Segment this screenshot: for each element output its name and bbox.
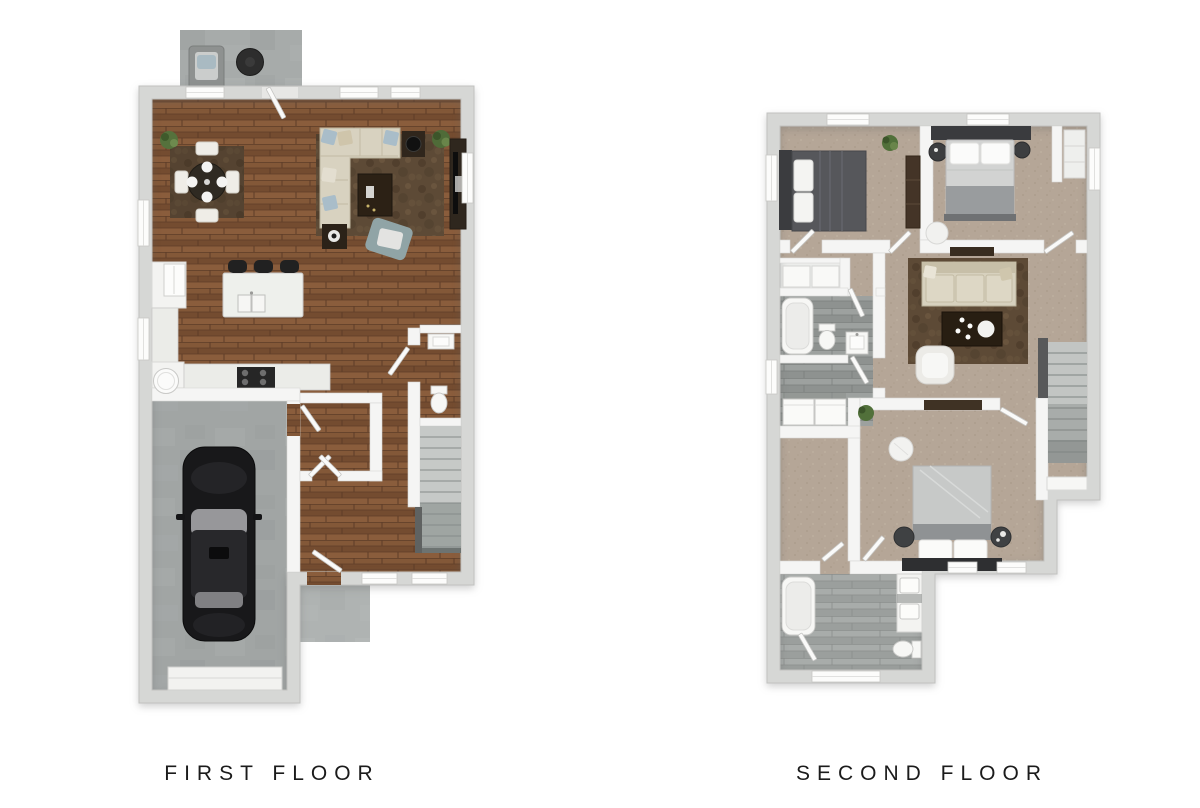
nightstand: [929, 143, 947, 161]
car-hood: [191, 462, 247, 494]
linen-wall: [780, 258, 844, 263]
burner: [242, 370, 248, 376]
toilet-tank: [819, 324, 835, 331]
powder-top-wall: [420, 325, 461, 333]
car-trunk: [193, 613, 245, 637]
dining-chair: [175, 171, 188, 193]
decor-dot: [956, 329, 961, 334]
pillow: [794, 160, 813, 191]
master-right-wall: [1036, 398, 1048, 500]
master-mattress: [913, 466, 991, 528]
stair-railing: [1038, 338, 1048, 398]
linen-shelf: [812, 266, 839, 287]
dresser: [906, 156, 920, 228]
nightstand-decor: [934, 148, 938, 152]
tub-basin: [786, 303, 809, 349]
closet-bath-wall: [780, 561, 820, 574]
first-floor-stairs: [415, 426, 461, 553]
floor-plans-drawing: [0, 0, 1200, 808]
decor-dot: [373, 209, 376, 212]
blanket-band: [913, 524, 991, 540]
car-sunroof: [209, 547, 229, 559]
armchair-seat: [922, 353, 948, 378]
sink-basin: [433, 337, 449, 346]
bath-top-wall: [780, 288, 848, 296]
garage-door-opening: [287, 404, 300, 436]
burner: [260, 370, 266, 376]
plant-leaf: [442, 138, 451, 147]
plant-leaf: [433, 132, 441, 140]
entry-stoop-shade: [300, 585, 370, 642]
stairs-lower: [420, 503, 461, 553]
stair-railing: [415, 507, 422, 553]
pillow: [919, 540, 952, 560]
throw-pillow: [321, 167, 337, 183]
footboard: [944, 214, 1016, 221]
nightstand-decor: [996, 538, 1000, 542]
closet-wall: [338, 471, 382, 481]
nightstand: [991, 527, 1011, 547]
throw-pillow: [322, 195, 339, 212]
car-rear-window: [195, 592, 243, 608]
tray: [978, 321, 995, 338]
linen-shelf: [783, 266, 810, 287]
plate: [217, 177, 228, 188]
plant-leaf: [161, 133, 169, 141]
burner: [242, 379, 248, 385]
pouf: [926, 222, 948, 244]
laundry-bottom-wall: [780, 426, 860, 438]
powder-wall: [408, 328, 420, 345]
bed-headboard: [779, 150, 792, 230]
decor-dot: [960, 318, 965, 323]
bed-headboard: [931, 126, 1031, 140]
laundry-counter-shadow: [783, 393, 846, 399]
dining-chair: [226, 171, 239, 193]
patio-table-top: [245, 57, 255, 67]
coffee-table-decor: [366, 186, 374, 198]
plant-leaf: [883, 137, 890, 144]
pillow: [981, 143, 1010, 164]
powder-stairs-wall: [420, 418, 461, 426]
toilet-bowl: [431, 393, 447, 413]
vanity-sink: [900, 578, 919, 593]
stair-niche: [1047, 477, 1087, 490]
dresser: [924, 400, 982, 410]
range: [237, 367, 275, 388]
plate: [187, 177, 198, 188]
nightstand-decor: [1000, 531, 1006, 537]
sink-basin: [850, 336, 864, 349]
decor-dot: [367, 205, 370, 208]
throw-pillow: [999, 267, 1013, 281]
decor-dot: [968, 324, 973, 329]
blanket: [946, 186, 1014, 218]
car-mirror: [176, 514, 185, 520]
bar-stool: [280, 260, 299, 273]
laundry: [783, 393, 846, 425]
pillow: [950, 143, 979, 164]
master-left-wall: [848, 398, 860, 561]
hall-wall: [300, 393, 382, 403]
patio-chair-pillow: [197, 55, 216, 69]
decor-dot: [966, 335, 971, 340]
bath-top-wall-stub: [876, 288, 885, 296]
first-floor-label: FIRST FLOOR: [137, 762, 407, 786]
car-mirror: [253, 514, 262, 520]
counter-left: [152, 308, 178, 362]
patio: [180, 30, 302, 92]
closet-nook-shelf: [1064, 130, 1085, 178]
throw-pillow: [923, 265, 937, 279]
speaker: [406, 137, 421, 152]
dryer: [815, 399, 846, 425]
front-door-opening: [307, 572, 341, 585]
toilet-bowl: [819, 331, 835, 350]
throw-pillow: [383, 130, 400, 147]
faucet: [856, 333, 859, 336]
throw-pillow: [337, 130, 353, 146]
loft-left-wall: [873, 253, 885, 358]
plant-leaf: [170, 139, 178, 147]
vanity-backsplash: [897, 594, 922, 603]
nightstand: [894, 527, 914, 547]
hall-wall: [780, 240, 790, 253]
car: [176, 447, 262, 641]
bath-laundry-wall: [780, 355, 848, 363]
powder-wall: [408, 382, 420, 507]
nightstand: [1014, 142, 1030, 158]
island-sink: [252, 295, 265, 312]
second-floor-plan: [766, 113, 1100, 683]
pillow: [954, 540, 987, 560]
island-sink: [238, 295, 251, 312]
tub-basin: [786, 582, 811, 630]
vanity-sink: [900, 604, 919, 619]
bedroom-divider-wall: [920, 126, 933, 240]
nook-wall: [1052, 126, 1062, 182]
record: [332, 234, 337, 239]
floor-plan-sheet: FIRST FLOOR SECOND FLOOR: [0, 0, 1200, 808]
loft-left-wall-stub: [873, 388, 885, 398]
sofa-cushion: [956, 275, 984, 302]
centerpiece: [204, 179, 210, 185]
loft: [908, 247, 1028, 384]
toilet-bowl: [893, 641, 913, 657]
plate: [202, 162, 213, 173]
plate: [202, 192, 213, 203]
pillow: [794, 193, 813, 222]
bar-stool: [228, 260, 247, 273]
second-floor-label: SECOND FLOOR: [787, 762, 1057, 786]
bar-stool: [254, 260, 273, 273]
hall-wall: [822, 240, 890, 253]
plant-leaf: [859, 407, 866, 414]
sofa-cushion: [926, 275, 954, 302]
burner: [260, 379, 266, 385]
stairs-bottom-edge: [420, 548, 461, 553]
closet-wall: [370, 403, 382, 481]
faucet: [250, 291, 253, 294]
media-console: [950, 247, 994, 256]
dining-chair: [196, 209, 218, 222]
hall-wall: [1076, 240, 1087, 253]
plant-leaf: [890, 142, 898, 150]
car-roof: [191, 530, 247, 598]
dining-chair: [196, 142, 218, 155]
first-floor-plan: [138, 30, 474, 703]
washer: [783, 399, 814, 425]
